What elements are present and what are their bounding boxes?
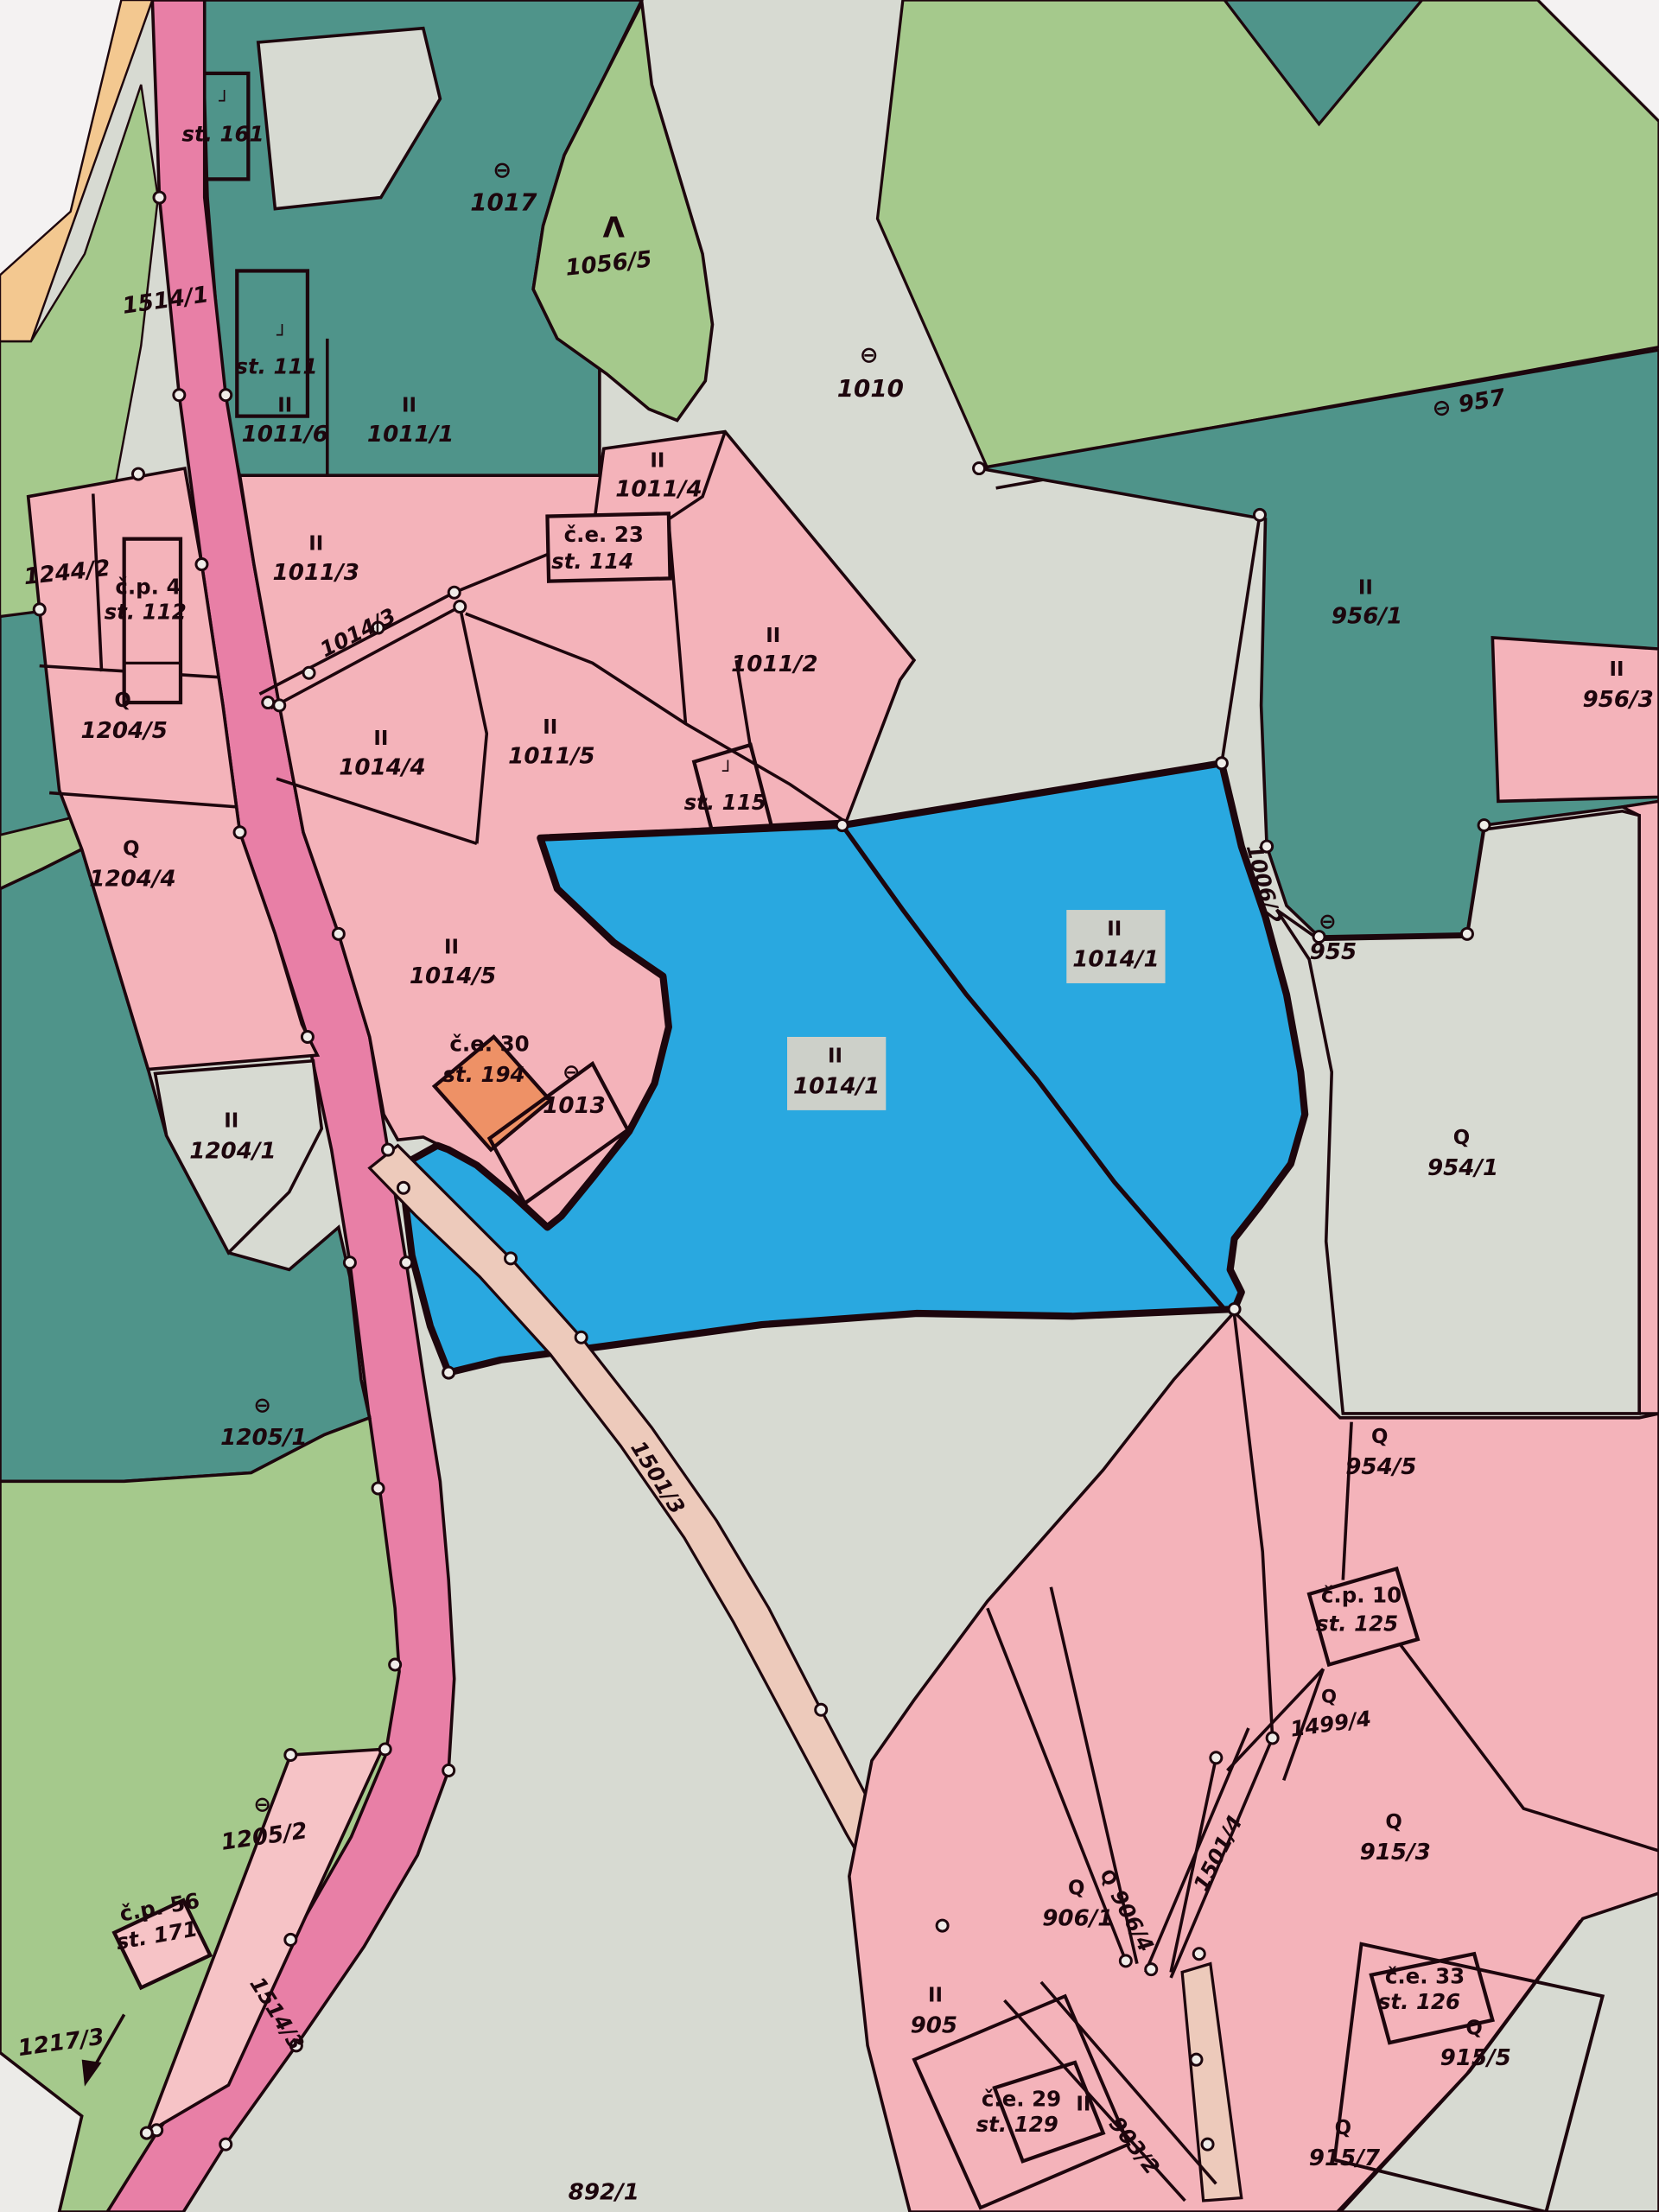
- boundary-vertex: [1267, 1732, 1278, 1744]
- parcel-label-1011-1: 1011/1: [367, 422, 454, 448]
- parcel-label-1204-1: 1204/1: [189, 1138, 276, 1164]
- boundary-vertex: [303, 667, 315, 678]
- parcel-label-1014-4: 1014/4: [339, 754, 425, 780]
- parcel-label-1011-4-sym: II: [650, 449, 664, 472]
- boundary-vertex: [220, 390, 232, 401]
- parcel-label-915-7-sym: Q: [1335, 2117, 1351, 2139]
- parcel-label-1014-1-c: 1014/1: [793, 1073, 880, 1099]
- parcel-label-954-5: 954/5: [1345, 1454, 1416, 1480]
- boundary-vertex: [154, 192, 165, 203]
- parcel-label-1017-sym: ⊖: [493, 158, 512, 184]
- parcel-label-955-sym: ⊖: [1319, 908, 1337, 933]
- parcel-label-905: 905: [911, 2013, 958, 2039]
- parcel-label-st-112: st. 112: [105, 600, 187, 625]
- boundary-vertex: [1461, 928, 1472, 939]
- parcel-label-1204-4: 1204/4: [89, 866, 175, 892]
- parcel-label-st-115: st. 115: [684, 790, 766, 815]
- boundary-vertex: [1202, 2139, 1213, 2150]
- parcel-label-1205-1-sym: ⊖: [253, 1392, 271, 1417]
- boundary-vertex: [34, 604, 45, 615]
- parcel-956-3-area: [1492, 638, 1659, 801]
- parcel-label-1011-5-sym: II: [543, 716, 557, 739]
- parcel-label-1014-1-r: 1014/1: [1072, 946, 1159, 972]
- parcel-label-954-1-sym: Q: [1453, 1127, 1470, 1149]
- parcel-label-1204-1-sym: II: [224, 1109, 238, 1132]
- boundary-vertex: [274, 700, 285, 711]
- parcel-label-1011-5: 1011/5: [508, 743, 594, 769]
- boundary-vertex: [302, 1031, 313, 1042]
- parcel-label-st-161: st. 161: [181, 121, 264, 146]
- parcel-label-915-7: 915/7: [1309, 2145, 1381, 2171]
- parcel-label-1017: 1017: [470, 188, 537, 216]
- parcel-label-1011-2-sym: II: [766, 625, 780, 647]
- parcel-label-1011-1-sym: II: [402, 395, 416, 417]
- parcel-label-st-194: st. 194: [442, 1062, 524, 1087]
- cadastral-map: ┘st. 161⊖1017Λ1056/51514/1┘st. 111II1011…: [0, 0, 1659, 2212]
- boundary-vertex: [372, 1483, 384, 1494]
- parcel-label-956-1-sym: II: [1358, 576, 1373, 599]
- boundary-vertex: [1191, 2054, 1202, 2065]
- parcel-label-cp-10: č.p. 10: [1321, 1583, 1402, 1608]
- boundary-vertex: [397, 1182, 409, 1193]
- parcel-label-1011-6: 1011/6: [242, 422, 328, 448]
- parcel-label-1011-6-sym: II: [277, 395, 292, 417]
- boundary-vertex: [448, 587, 460, 598]
- parcel-label-cp-4: č.p. 4: [115, 574, 181, 599]
- parcel-label-915-5: 915/5: [1440, 2045, 1511, 2071]
- parcel-label-905-sym: II: [928, 1985, 943, 2007]
- boundary-vertex: [1478, 820, 1490, 831]
- parcel-label-ce-23: č.e. 23: [564, 522, 644, 547]
- parcel-label-956-3: 956/3: [1583, 687, 1654, 713]
- parcel-label-1011-2: 1011/2: [731, 652, 817, 677]
- parcel-label-st-126: st. 126: [1378, 1989, 1460, 2014]
- parcel-label-st-114: st. 114: [551, 549, 633, 574]
- boundary-vertex: [234, 827, 245, 838]
- boundary-vertex: [1229, 1304, 1240, 1315]
- parcel-label-903-2-sym: II: [1076, 2093, 1090, 2115]
- parcel-label-892-1: 892/1: [569, 2179, 639, 2205]
- boundary-vertex: [285, 1934, 296, 1945]
- parcel-label-1499-4-sym: Q: [1321, 1687, 1337, 1708]
- parcel-label-ce-29: č.e. 29: [982, 2087, 1061, 2112]
- boundary-vertex: [443, 1367, 454, 1378]
- boundary-vertex: [333, 928, 344, 939]
- boundary-vertex: [454, 601, 466, 613]
- parcel-label-1204-5: 1204/5: [80, 718, 167, 744]
- boundary-vertex: [285, 1749, 296, 1760]
- parcel-label-st-161-bld-sym: ┘: [218, 90, 230, 112]
- boundary-vertex: [401, 1257, 412, 1268]
- parcel-label-915-3-sym: Q: [1385, 1811, 1402, 1834]
- parcel-label-1204-5-sym: Q: [114, 690, 130, 712]
- boundary-vertex: [382, 1144, 393, 1155]
- boundary-vertex: [1211, 1752, 1222, 1764]
- parcel-label-st-111-bld-sym: ┘: [276, 324, 288, 346]
- parcel-label-1014-1-r-sym: II: [1107, 918, 1122, 940]
- boundary-vertex: [390, 1659, 401, 1670]
- boundary-vertex: [196, 559, 207, 570]
- parcel-label-1010: 1010: [837, 374, 904, 403]
- parcel-label-955: 955: [1310, 939, 1357, 965]
- parcel-label-1014-5-sym: II: [444, 937, 459, 959]
- parcel-label-1204-4-sym: Q: [123, 837, 139, 860]
- boundary-vertex: [344, 1257, 355, 1268]
- parcel-label-954-1: 954/1: [1427, 1155, 1498, 1181]
- parcel-label-st-115-bld-sym: ┘: [721, 760, 734, 783]
- boundary-vertex: [1120, 1955, 1131, 1967]
- parcel-label-1013-sym: ⊖: [563, 1059, 581, 1084]
- boundary-vertex: [263, 697, 274, 709]
- boundary-vertex: [220, 2139, 232, 2150]
- parcel-label-ce-30: č.e. 30: [449, 1031, 529, 1056]
- parcel-label-1011-4: 1011/4: [615, 477, 702, 503]
- boundary-vertex: [816, 1704, 827, 1715]
- boundary-vertex: [379, 1744, 391, 1755]
- parcel-label-st-129: st. 129: [976, 2112, 1058, 2137]
- parcel-label-1011-3-sym: II: [308, 533, 323, 556]
- parcel-label-915-5-sym: Q: [1465, 2017, 1482, 2039]
- boundary-vertex: [174, 390, 185, 401]
- boundary-vertex: [132, 468, 143, 480]
- parcel-label-915-3: 915/3: [1360, 1840, 1431, 1866]
- parcel-label-906-1-sym: Q: [1068, 1878, 1084, 1900]
- boundary-vertex: [1216, 758, 1227, 769]
- parcel-label-1011-3: 1011/3: [273, 560, 359, 586]
- parcel-label-st-125: st. 125: [1316, 1611, 1398, 1636]
- parcel-label-1013: 1013: [543, 1093, 606, 1119]
- boundary-vertex: [1193, 1948, 1205, 1960]
- parcel-label-1014-5: 1014/5: [410, 963, 496, 989]
- boundary-vertex: [836, 820, 848, 831]
- parcel-label-1014-1-c-sym: II: [828, 1045, 842, 1067]
- parcel-label-1014-4-sym: II: [373, 728, 388, 750]
- parcel-label-1056-5-sym: Λ: [603, 211, 626, 244]
- parcel-label-906-1: 906/1: [1042, 1906, 1113, 1932]
- boundary-vertex: [575, 1332, 587, 1343]
- parcel-label-1205-1: 1205/1: [220, 1425, 307, 1451]
- parcel-label-ce-33: č.e. 33: [1385, 1964, 1465, 1989]
- boundary-vertex: [141, 2127, 152, 2139]
- parcel-label-954-5-sym: Q: [1371, 1426, 1388, 1448]
- parcel-label-1205-2-sym: ⊖: [253, 1791, 271, 1816]
- boundary-vertex: [1254, 509, 1265, 520]
- boundary-vertex: [937, 1920, 948, 1931]
- boundary-vertex: [443, 1764, 454, 1776]
- boundary-vertex: [974, 463, 985, 474]
- parcel-label-st-111: st. 111: [235, 354, 317, 379]
- parcel-label-1010-sym: ⊖: [860, 343, 879, 369]
- boundary-vertex: [1146, 1964, 1157, 1975]
- parcel-label-956-1: 956/1: [1332, 604, 1402, 630]
- boundary-vertex: [505, 1253, 516, 1264]
- parcel-label-956-3-sym: II: [1610, 658, 1624, 681]
